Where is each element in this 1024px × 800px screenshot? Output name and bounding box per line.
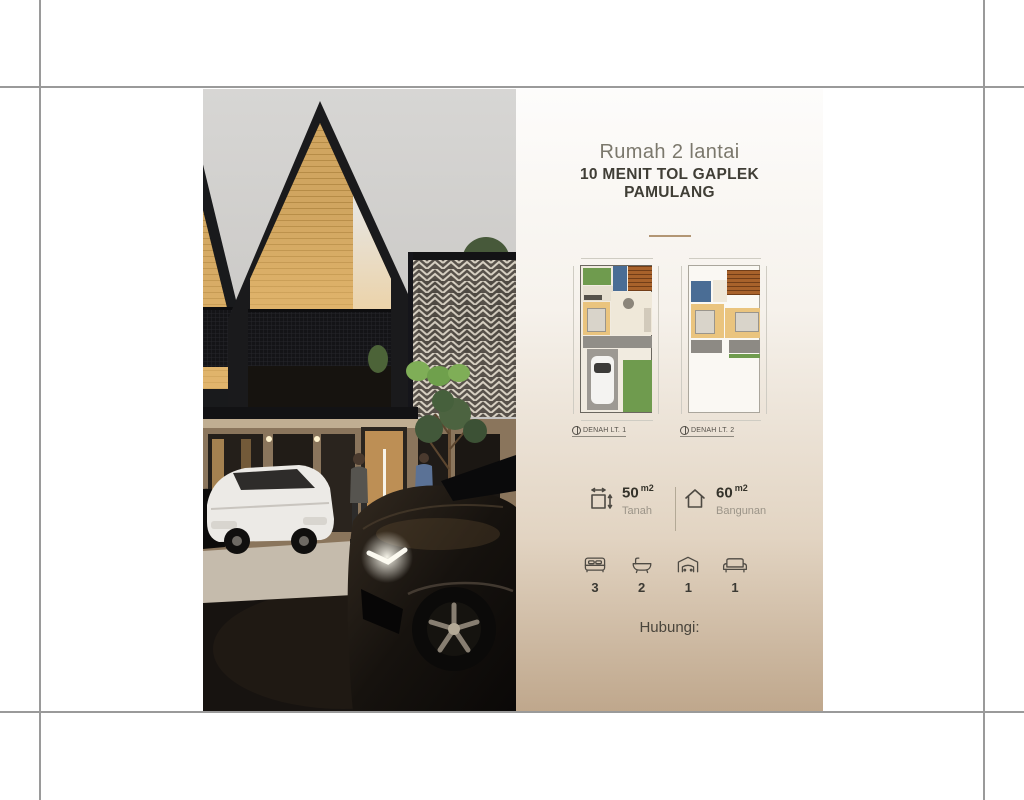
guide-line-right [983,0,985,800]
land-area-icon [588,486,614,512]
spec-divider [675,487,676,531]
balcony-railing [248,309,391,407]
house-render-graphic [203,89,516,712]
bathroom [691,281,711,302]
flyer-subtitle: 10 MENIT TOL GAPLEK PAMULANG [516,166,823,202]
guide-line-top [0,86,1024,88]
stairs [628,266,652,291]
garage-icon [676,555,700,574]
amenity-bedrooms: 3 [575,555,615,595]
balcony-right [729,340,760,353]
garden-back [623,360,652,412]
wall-lamp [314,436,320,442]
info-panel: Rumah 2 lantai 10 MENIT TOL GAPLEK PAMUL… [516,89,823,712]
house-photo [203,89,516,712]
sofa-icon [722,555,748,574]
stairs [727,270,760,295]
floor-plan-1-label: DENAH LT. 1 [572,426,626,437]
accent-divider [649,235,691,237]
bed [735,312,759,332]
floor-plan-2-label: DENAH LT. 2 [680,426,734,437]
bathroom [613,266,627,291]
floor-plan-1 [580,265,652,413]
bed [587,308,606,332]
subtitle-line2: PAMULANG [516,184,823,202]
white-car [207,465,334,554]
chevron-screen-wall [406,252,516,417]
bed-icon [583,555,607,574]
spec-building: 60m2 Bangunan [682,483,766,517]
compass-icon [572,426,581,435]
amenity-garage: 1 [668,555,708,595]
bed [695,310,715,334]
compass-icon [680,426,689,435]
balcony-left [691,340,722,353]
contact-label: Hubungi: [516,619,823,636]
design-canvas: Rumah 2 lantai 10 MENIT TOL GAPLEK PAMUL… [0,0,1024,800]
floor-plan-2 [688,265,760,413]
spec-land: 50m2 Tanah [588,483,654,517]
wall-lamp [266,436,272,442]
balcony-plant [368,345,388,373]
terrace [583,336,652,348]
bathtub-icon [630,555,654,574]
flyer-title: Rumah 2 lantai [516,141,823,164]
guide-line-bottom [0,711,1024,713]
amenities-row: 3 2 1 [575,555,755,595]
amenity-livingroom: 1 [715,555,755,595]
amenity-bathrooms: 2 [622,555,662,595]
subtitle-line1: 10 MENIT TOL GAPLEK [516,166,823,184]
spec-row: 50m2 Tanah 60m2 Bangunan [516,483,823,543]
building-area-icon [682,486,708,512]
guide-line-left [39,0,41,800]
garden-front [583,268,611,285]
